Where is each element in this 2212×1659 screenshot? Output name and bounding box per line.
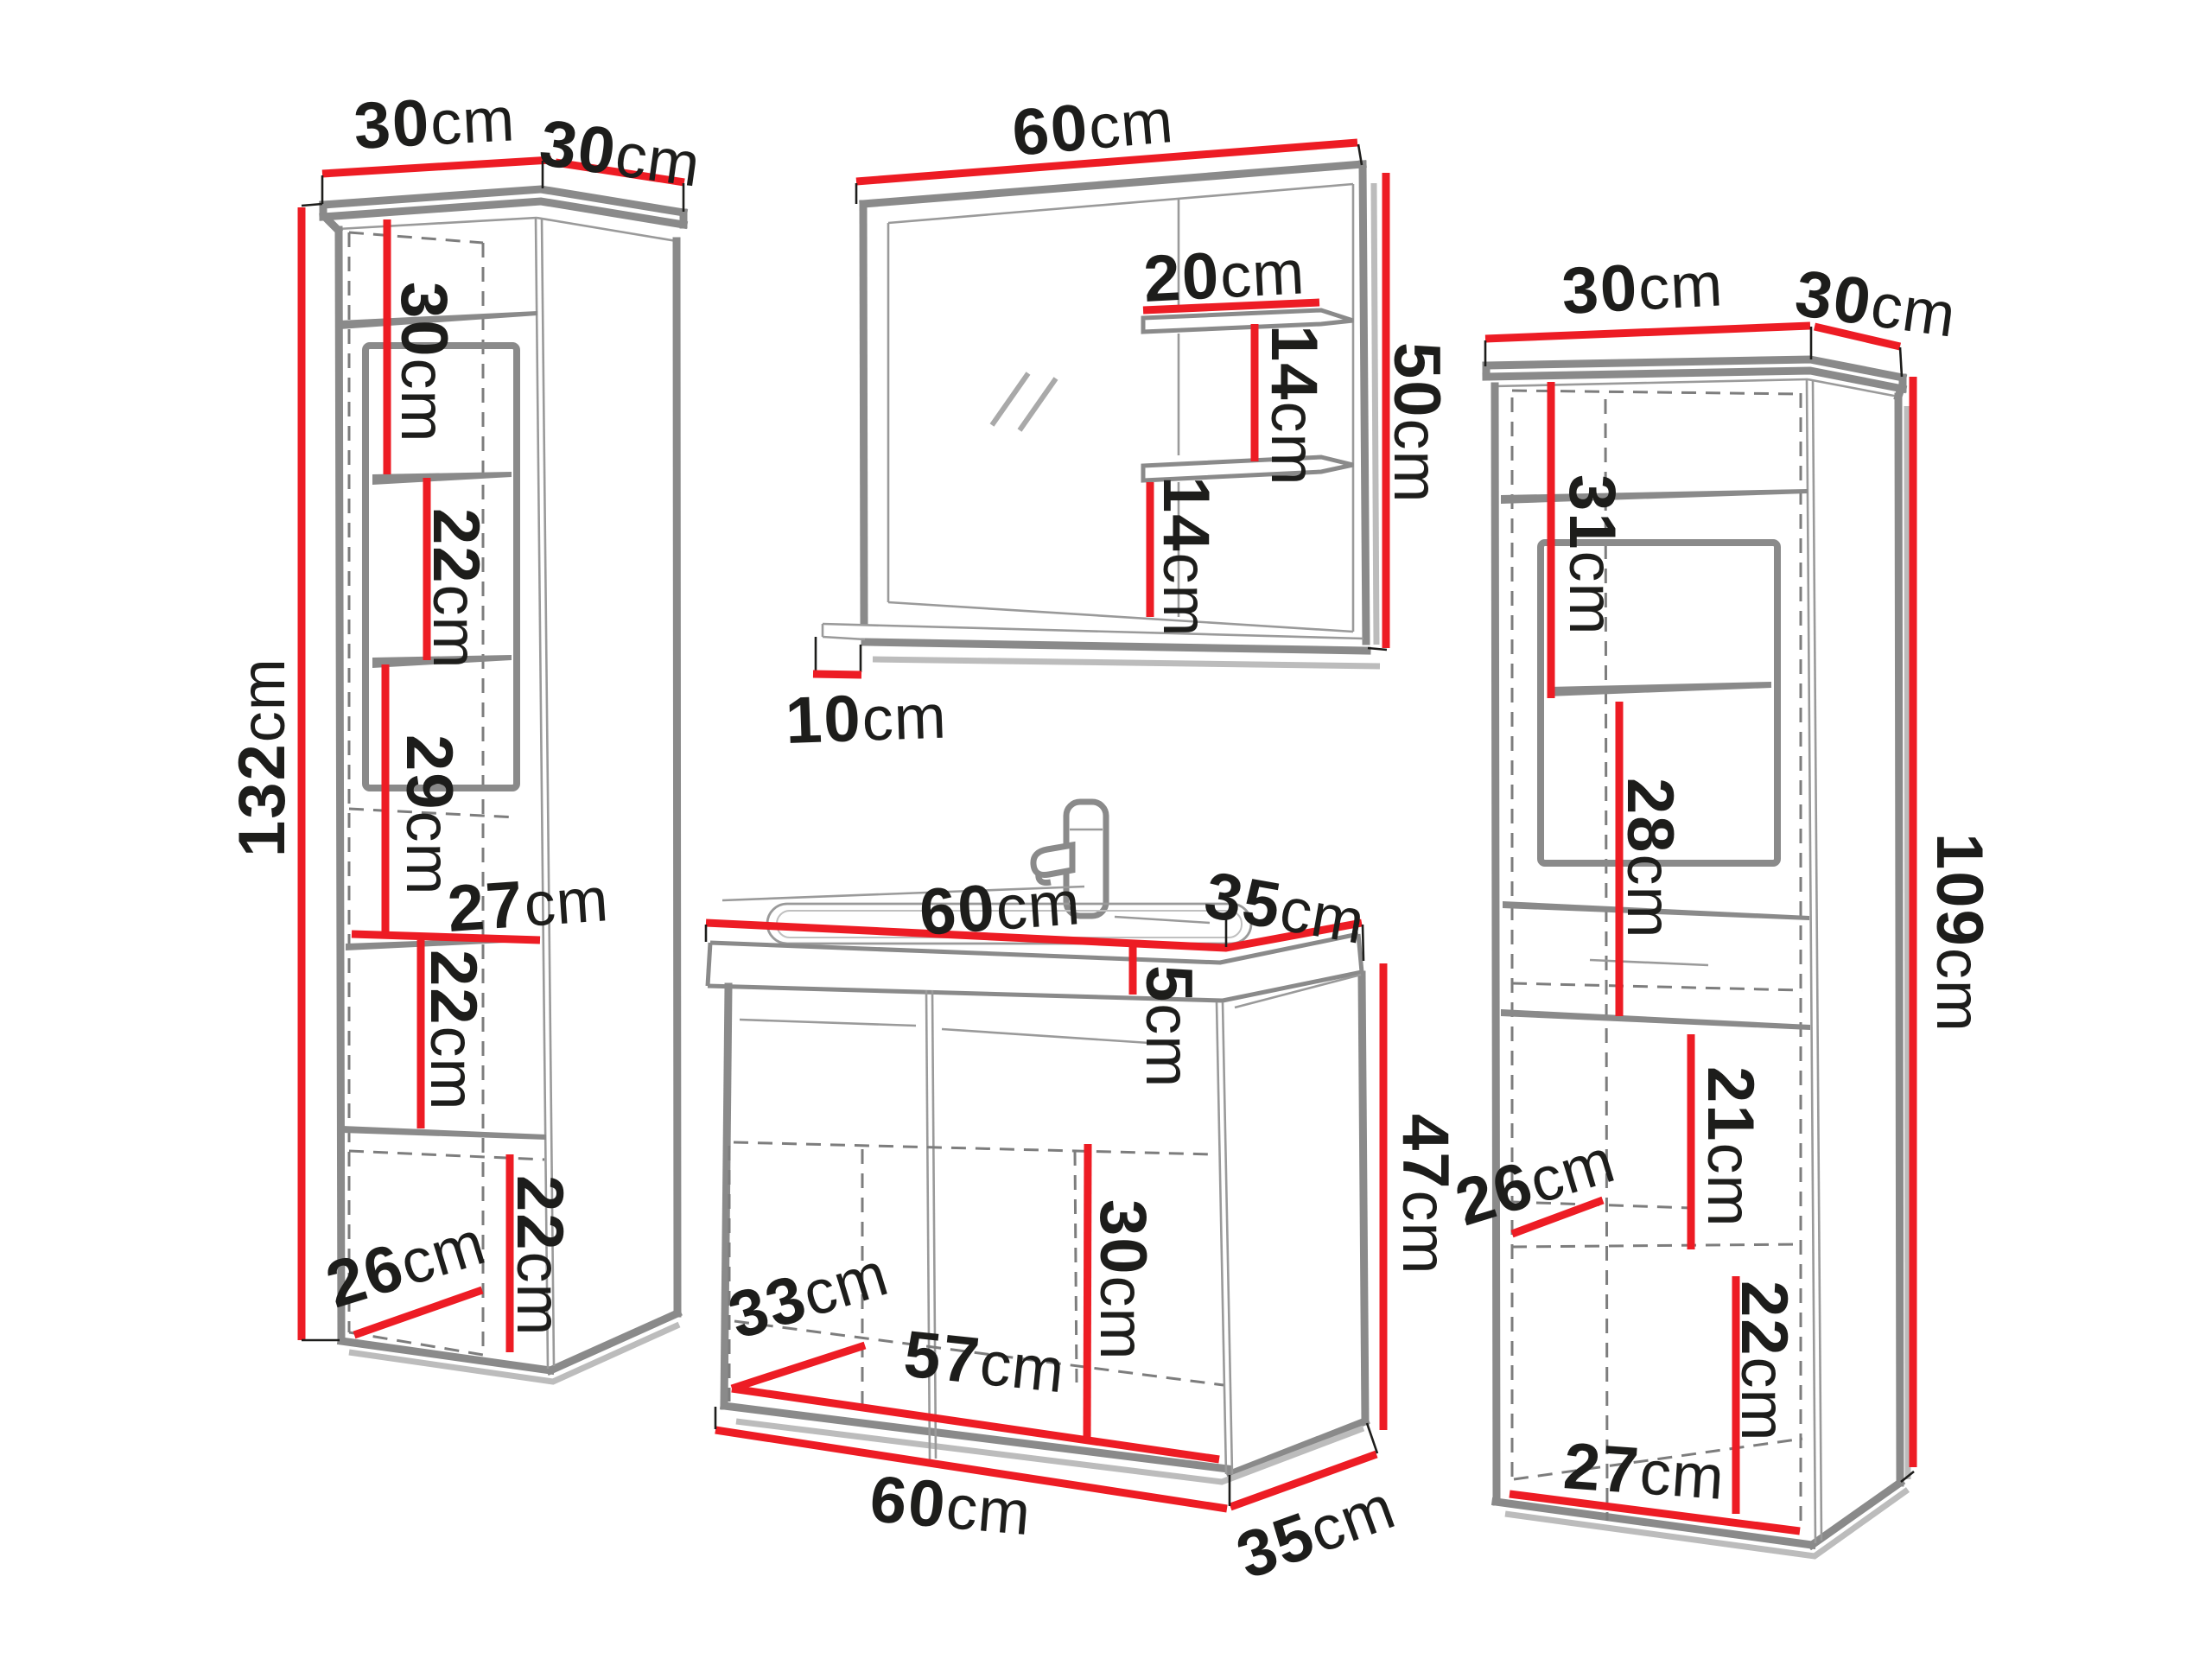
svg-text:22cm: 22cm: [503, 1175, 576, 1337]
svg-text:109cm: 109cm: [1923, 833, 1996, 1033]
svg-text:27cm: 27cm: [445, 861, 611, 946]
svg-text:60cm: 60cm: [917, 865, 1083, 950]
svg-text:30cm: 30cm: [387, 282, 461, 443]
svg-text:31cm: 31cm: [1555, 474, 1629, 636]
svg-text:22cm: 22cm: [1727, 1281, 1801, 1442]
svg-text:30cm: 30cm: [352, 81, 517, 163]
svg-text:28cm: 28cm: [1613, 778, 1687, 939]
svg-text:14cm: 14cm: [1149, 476, 1223, 638]
svg-text:27cm: 27cm: [1561, 1429, 1727, 1514]
svg-text:22cm: 22cm: [419, 508, 493, 670]
svg-text:14cm: 14cm: [1257, 325, 1331, 486]
svg-text:20cm: 20cm: [1141, 234, 1306, 316]
svg-text:5cm: 5cm: [1132, 965, 1205, 1088]
svg-text:132cm: 132cm: [226, 658, 299, 857]
svg-text:21cm: 21cm: [1694, 1066, 1767, 1228]
svg-text:30cm: 30cm: [1086, 1199, 1160, 1361]
svg-text:60cm: 60cm: [1009, 83, 1176, 170]
svg-text:22cm: 22cm: [416, 950, 490, 1111]
svg-text:10cm: 10cm: [785, 679, 948, 758]
svg-text:30cm: 30cm: [1560, 246, 1725, 328]
svg-text:50cm: 50cm: [1380, 342, 1453, 504]
svg-text:47cm: 47cm: [1389, 1114, 1462, 1275]
